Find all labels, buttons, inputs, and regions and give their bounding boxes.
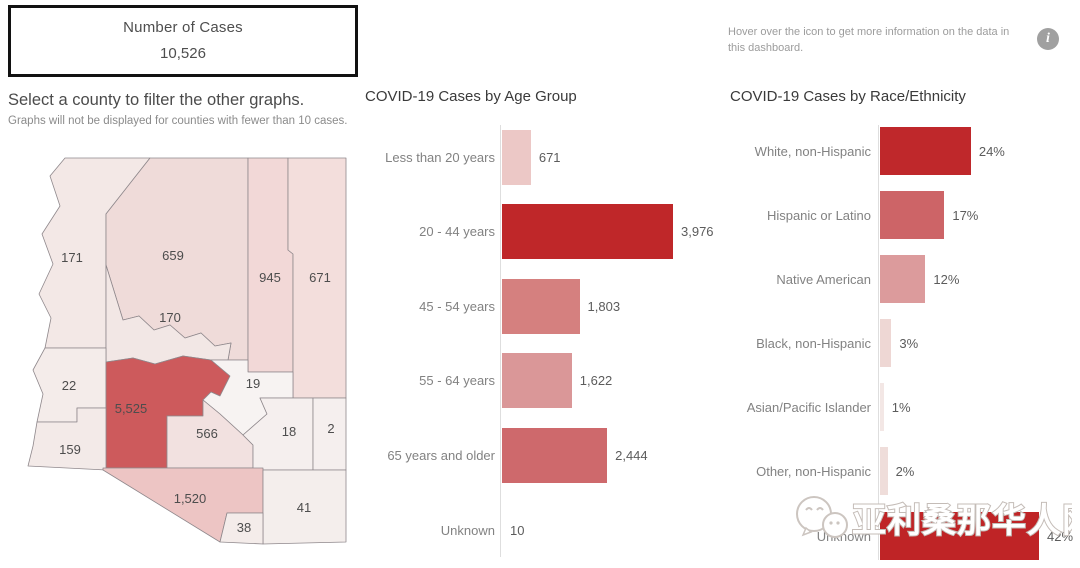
age-bar-4[interactable] [502, 428, 607, 483]
race-bar-5[interactable] [880, 447, 888, 495]
race-category-label-6: Unknown [730, 529, 871, 544]
age-chart-row: Less than 20 years671 [365, 120, 561, 194]
race-category-label-4: Asian/Pacific Islander [730, 400, 871, 415]
age-category-label-0: Less than 20 years [365, 150, 495, 165]
age-chart-row: 55 - 64 years1,622 [365, 343, 612, 417]
age-chart-row: 45 - 54 years1,803 [365, 269, 620, 343]
race-bar-6[interactable] [880, 512, 1039, 560]
arizona-county-map: 171659945671170225,525191595661821,52041… [15, 150, 350, 562]
age-category-label-4: 65 years and older [365, 448, 495, 463]
county-label-la_paz: 22 [62, 378, 76, 393]
race-value-label-5: 2% [896, 464, 915, 479]
age-category-label-1: 20 - 44 years [365, 224, 495, 239]
race-chart-title: COVID-19 Cases by Race/Ethnicity [730, 88, 966, 105]
age-chart-row: Unknown10 [365, 493, 524, 567]
age-value-label-2: 1,803 [588, 299, 621, 314]
age-chart-row: 20 - 44 years3,976 [365, 194, 714, 268]
race-category-label-1: Hispanic or Latino [730, 208, 871, 223]
race-chart-row: Native American12% [730, 247, 959, 311]
age-category-label-5: Unknown [365, 523, 495, 538]
race-chart-row: Unknown42% [730, 504, 1073, 568]
age-bar-1[interactable] [502, 204, 673, 259]
county-navajo[interactable] [248, 158, 293, 372]
county-label-maricopa: 5,525 [115, 401, 148, 416]
county-label-yuma: 159 [59, 442, 81, 457]
cases-card-value: 10,526 [11, 45, 355, 62]
age-value-label-3: 1,622 [580, 373, 613, 388]
race-bar-0[interactable] [880, 127, 971, 175]
race-bar-2[interactable] [880, 255, 925, 303]
age-chart-row: 65 years and older2,444 [365, 418, 648, 492]
cases-card-title: Number of Cases [11, 19, 355, 36]
map-instruction: Select a county to filter the other grap… [8, 91, 304, 110]
race-category-label-2: Native American [730, 272, 871, 287]
race-value-label-3: 3% [899, 336, 918, 351]
info-icon[interactable]: i [1037, 28, 1059, 50]
age-group-chart: COVID-19 Cases by Age Group Less than 20… [365, 88, 713, 567]
race-chart-row: Black, non-Hispanic3% [730, 311, 918, 375]
race-bar-4[interactable] [880, 383, 884, 431]
county-label-graham: 18 [282, 424, 296, 439]
county-label-yavapai: 170 [159, 310, 181, 325]
age-value-label-4: 2,444 [615, 448, 648, 463]
race-value-label-0: 24% [979, 144, 1005, 159]
county-label-pinal: 566 [196, 426, 218, 441]
race-value-label-6: 42% [1047, 529, 1073, 544]
race-chart-row: Asian/Pacific Islander1% [730, 375, 911, 439]
age-value-label-1: 3,976 [681, 224, 714, 239]
age-category-label-2: 45 - 54 years [365, 299, 495, 314]
county-label-pima: 1,520 [174, 491, 207, 506]
race-value-label-2: 12% [933, 272, 959, 287]
number-of-cases-card: Number of Cases 10,526 [8, 5, 358, 77]
county-label-coconino: 659 [162, 248, 184, 263]
county-label-gila: 19 [246, 376, 260, 391]
race-category-label-3: Black, non-Hispanic [730, 336, 871, 351]
map-subtitle: Graphs will not be displayed for countie… [8, 115, 347, 127]
age-bar-0[interactable] [502, 130, 531, 185]
county-label-mohave: 171 [61, 250, 83, 265]
county-label-apache: 671 [309, 270, 331, 285]
race-category-label-0: White, non-Hispanic [730, 144, 871, 159]
race-chart-row: Hispanic or Latino17% [730, 183, 978, 247]
race-ethnicity-chart: COVID-19 Cases by Race/Ethnicity White, … [730, 88, 1080, 567]
age-bar-3[interactable] [502, 353, 572, 408]
race-chart-row: White, non-Hispanic24% [730, 119, 1005, 183]
race-value-label-1: 17% [952, 208, 978, 223]
age-value-label-5: 10 [510, 523, 524, 538]
county-label-cochise: 41 [297, 500, 311, 515]
race-bar-3[interactable] [880, 319, 891, 367]
info-note: Hover over the icon to get more informat… [728, 25, 1024, 57]
age-chart-title: COVID-19 Cases by Age Group [365, 88, 577, 105]
race-chart-row: Other, non-Hispanic2% [730, 439, 914, 503]
race-value-label-4: 1% [892, 400, 911, 415]
county-label-greenlee: 2 [327, 421, 334, 436]
race-category-label-5: Other, non-Hispanic [730, 464, 871, 479]
age-category-label-3: 55 - 64 years [365, 373, 495, 388]
county-label-navajo: 945 [259, 270, 281, 285]
age-bar-2[interactable] [502, 279, 580, 334]
age-value-label-0: 671 [539, 150, 561, 165]
county-label-santa_cruz: 38 [237, 520, 251, 535]
race-bar-1[interactable] [880, 191, 944, 239]
